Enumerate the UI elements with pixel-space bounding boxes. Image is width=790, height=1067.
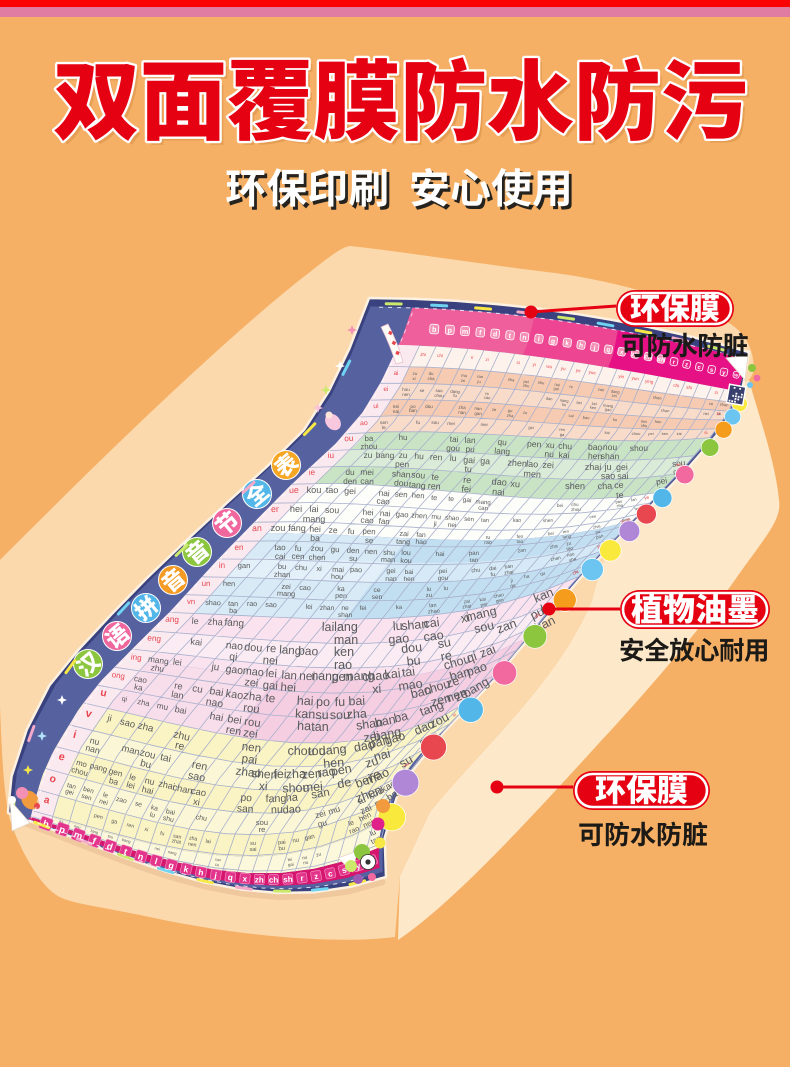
svg-text:ju: ju [210, 661, 220, 673]
svg-text:tao: tao [274, 543, 286, 552]
svg-text:cao: cao [299, 583, 311, 592]
svg-text:ui: ui [373, 403, 379, 410]
svg-text:lai: lai [309, 504, 318, 514]
svg-text:sh: sh [283, 875, 293, 884]
svg-text:rao: rao [247, 600, 258, 609]
svg-text:xi: xi [316, 564, 322, 573]
svg-text:nai: nai [393, 409, 400, 415]
svg-text:chu: chu [471, 568, 480, 575]
svg-text:cao: cao [360, 516, 374, 526]
svg-text:rao: rao [484, 540, 492, 546]
svg-text:si: si [516, 360, 520, 365]
svg-text:ren: ren [430, 452, 443, 463]
svg-text:nei: nei [703, 411, 709, 416]
svg-text:tan: tan [311, 720, 328, 734]
svg-text:mang: mang [277, 589, 296, 599]
svg-text:gai: gai [288, 862, 294, 868]
svg-text:bang: bang [376, 450, 395, 460]
svg-text:cha: cha [427, 376, 435, 381]
svg-text:kao: kao [513, 518, 521, 524]
svg-text:fei: fei [461, 484, 471, 495]
svg-text:bai: bai [405, 569, 414, 576]
svg-text:cen: cen [589, 514, 597, 520]
svg-text:lei: lei [305, 604, 313, 611]
svg-text:shu: shu [641, 423, 648, 428]
svg-text:ze: ze [328, 525, 338, 535]
svg-text:su: su [349, 554, 358, 563]
svg-text:ha: ha [285, 792, 299, 805]
svg-text:gei: gei [344, 486, 356, 496]
svg-text:cai: cai [568, 413, 574, 418]
svg-text:zhan: zhan [320, 605, 335, 612]
svg-text:cao: cao [484, 395, 492, 401]
svg-text:zhan: zhan [274, 570, 291, 580]
svg-text:er: er [271, 504, 279, 514]
svg-text:yi: yi [532, 362, 536, 367]
svg-text:zh: zh [255, 875, 264, 884]
svg-text:shen: shen [543, 518, 554, 523]
svg-text:ce: ce [374, 587, 381, 594]
svg-text:si: si [704, 430, 708, 435]
svg-text:sou: sou [431, 420, 439, 425]
svg-text:se: se [365, 536, 374, 545]
svg-text:nei: nei [448, 522, 457, 529]
svg-text:re: re [258, 825, 265, 834]
svg-text:cu: cu [215, 862, 220, 867]
svg-text:nan: nan [458, 410, 466, 415]
svg-text:kai: kai [558, 450, 570, 461]
svg-text:dou: dou [394, 478, 409, 489]
svg-text:en: en [234, 543, 244, 552]
svg-text:kai: kai [604, 430, 609, 435]
svg-text:ken: ken [590, 405, 597, 411]
svg-text:pen: pen [395, 459, 410, 469]
svg-text:chen: chen [308, 553, 325, 563]
svg-text:men: men [523, 468, 541, 479]
svg-text:ku: ku [562, 402, 567, 407]
svg-text:fei: fei [360, 605, 367, 612]
svg-text:qi: qi [229, 652, 238, 664]
svg-text:ben: ben [662, 431, 669, 436]
svg-text:bei: bei [557, 503, 563, 508]
svg-text:kou: kou [307, 485, 322, 495]
svg-text:xu: xu [510, 479, 520, 490]
svg-text:hai: hai [209, 711, 224, 724]
svg-text:hu: hu [414, 451, 424, 461]
svg-text:hei: hei [290, 504, 302, 514]
svg-text:fang: fang [288, 523, 306, 533]
svg-text:ren: ren [427, 480, 441, 491]
svg-text:zhu: zhu [150, 662, 165, 674]
svg-text:tang: tang [408, 479, 426, 490]
svg-text:lu: lu [449, 453, 457, 463]
svg-text:bu: bu [278, 846, 285, 853]
svg-text:un: un [202, 579, 211, 588]
svg-text:xi: xi [412, 376, 415, 381]
svg-text:hao: hao [415, 539, 427, 547]
svg-text:lang: lang [494, 445, 511, 456]
svg-text:chu: chu [295, 563, 307, 572]
svg-text:shao: shao [205, 598, 221, 608]
svg-text:mei: mei [480, 422, 487, 427]
svg-text:wu: wu [546, 364, 553, 370]
svg-text:ing: ing [130, 652, 142, 662]
svg-text:ken: ken [334, 645, 354, 659]
svg-text:po: po [240, 793, 252, 805]
svg-text:cu: cu [191, 683, 203, 696]
svg-text:ue: ue [289, 485, 299, 495]
svg-text:ang: ang [165, 614, 180, 625]
svg-text:pu: pu [465, 444, 475, 454]
svg-text:zan: zan [517, 548, 526, 555]
svg-text:ha: ha [297, 719, 311, 733]
svg-text:n: n [522, 334, 527, 341]
svg-text:can: can [360, 476, 374, 486]
svg-text:ce: ce [614, 480, 624, 490]
svg-text:gao: gao [396, 510, 409, 520]
svg-text:tu: tu [464, 464, 472, 474]
svg-text:gan: gan [474, 411, 482, 417]
svg-text:hou: hou [655, 419, 662, 424]
svg-text:man: man [381, 555, 396, 564]
svg-text:de: de [336, 775, 352, 791]
svg-text:mei: mei [447, 421, 455, 426]
svg-text:se: se [420, 388, 425, 393]
svg-text:hen: hen [403, 576, 414, 583]
svg-text:tan: tan [481, 518, 489, 524]
svg-text:ba: ba [310, 533, 320, 543]
svg-text:cai: cai [275, 552, 286, 561]
svg-text:hen: hen [412, 490, 425, 500]
svg-text:m: m [462, 327, 469, 336]
svg-text:shan: shan [338, 612, 353, 619]
svg-text:chou: chou [632, 431, 641, 436]
svg-text:zhai: zhai [585, 462, 602, 472]
svg-text:ei: ei [383, 386, 388, 393]
svg-text:chi: chi [437, 353, 443, 358]
svg-text:cao: cao [376, 496, 390, 507]
svg-text:fan: fan [378, 517, 390, 527]
svg-text:hei: hei [280, 680, 296, 694]
svg-text:zou: zou [311, 544, 324, 553]
svg-text:den: den [343, 476, 357, 486]
svg-text:dou: dou [425, 404, 433, 409]
svg-text:dao: dao [282, 803, 301, 816]
svg-text:gan: gan [238, 561, 251, 570]
svg-text:zha: zha [507, 413, 515, 419]
svg-text:pao: pao [350, 565, 362, 574]
svg-text:can: can [478, 505, 488, 513]
svg-text:ga: ga [480, 456, 491, 467]
svg-text:nu: nu [544, 449, 554, 459]
svg-text:tang: tang [396, 537, 410, 547]
svg-text:lan: lan [171, 689, 185, 701]
svg-text:fang: fang [224, 617, 244, 629]
svg-text:sao: sao [265, 601, 277, 610]
svg-text:tao: tao [516, 539, 523, 545]
svg-text:le: le [191, 616, 199, 626]
svg-text:zan: zan [598, 387, 605, 393]
svg-text:ou: ou [344, 434, 353, 443]
svg-text:gu: gu [331, 545, 340, 554]
svg-text:nao: nao [225, 640, 244, 653]
svg-text:lai: lai [205, 839, 211, 846]
svg-text:sen: sen [394, 489, 408, 499]
svg-text:d: d [493, 331, 498, 338]
svg-text:fu: fu [347, 527, 355, 536]
svg-text:kai: kai [190, 636, 203, 647]
svg-text:shen: shen [565, 481, 585, 491]
svg-text:zu: zu [364, 451, 373, 460]
svg-text:gei: gei [386, 568, 396, 575]
svg-text:eng: eng [147, 633, 162, 643]
svg-text:ka: ka [396, 605, 403, 611]
svg-text:ku: ku [613, 417, 618, 422]
svg-text:ao: ao [360, 420, 368, 427]
svg-text:nei: nei [262, 654, 278, 667]
svg-text:nu: nu [292, 837, 300, 844]
svg-text:gei: gei [528, 425, 534, 430]
svg-text:xi: xi [372, 682, 382, 697]
svg-text:zha: zha [207, 616, 224, 628]
svg-text:nai: nai [492, 486, 505, 497]
svg-text:fu: fu [490, 572, 495, 578]
svg-text:fan: fan [631, 497, 637, 503]
svg-text:pen: pen [335, 593, 347, 600]
svg-text:chan: chan [661, 408, 670, 414]
svg-text:gao: gao [225, 664, 244, 677]
svg-text:zei: zei [542, 460, 554, 471]
svg-text:sou: sou [325, 505, 340, 515]
svg-text:zi: zi [716, 411, 720, 416]
svg-text:pen: pen [527, 439, 542, 450]
svg-text:ban: ban [409, 408, 417, 413]
svg-text:le: le [382, 425, 386, 431]
svg-text:fu: fu [416, 420, 420, 426]
svg-text:gou: gou [446, 444, 461, 454]
svg-text:zha: zha [549, 543, 558, 550]
svg-text:ri: ri [471, 355, 474, 360]
svg-text:nen: nen [402, 392, 410, 397]
svg-text:tai: tai [450, 435, 459, 444]
svg-text:zhou: zhou [571, 507, 581, 512]
svg-text:vn: vn [187, 597, 196, 606]
svg-text:te: te [265, 691, 277, 706]
svg-text:gou: gou [438, 575, 449, 582]
svg-text:dan: dan [546, 396, 553, 402]
svg-text:gai: gai [553, 386, 559, 392]
svg-text:chou: chou [434, 393, 444, 398]
svg-text:rou: rou [242, 702, 260, 716]
svg-text:lai: lai [322, 620, 335, 634]
svg-text:zhi: zhi [420, 352, 426, 357]
svg-text:lang: lang [334, 620, 358, 634]
svg-text:ba: ba [229, 606, 237, 615]
svg-text:sai: sai [249, 847, 256, 853]
svg-text:lei: lei [172, 656, 182, 667]
svg-text:zei: zei [611, 393, 617, 399]
svg-text:ch: ch [269, 876, 279, 885]
svg-text:san: san [237, 803, 254, 815]
svg-text:shu: shu [538, 380, 545, 386]
svg-text:ren: ren [225, 724, 242, 738]
svg-text:zi: zi [485, 357, 489, 362]
svg-text:bei: bei [576, 400, 582, 406]
svg-text:zu: zu [426, 593, 433, 599]
svg-text:tan: tan [470, 557, 479, 564]
svg-text:zou: zou [271, 523, 286, 533]
svg-text:zhai: zhai [504, 569, 514, 576]
svg-text:chi: chi [673, 383, 680, 389]
svg-text:shou: shou [630, 443, 649, 453]
svg-text:tao: tao [326, 485, 339, 495]
svg-text:sen: sen [464, 516, 474, 524]
svg-text:lei: lei [265, 668, 277, 681]
svg-text:mang: mang [303, 514, 326, 524]
svg-text:hen: hen [223, 579, 236, 588]
svg-text:lu: lu [444, 586, 449, 592]
svg-text:nan: nan [385, 576, 397, 583]
svg-text:cen: cen [291, 552, 304, 561]
svg-text:gai: gai [462, 497, 471, 505]
svg-text:hu: hu [399, 433, 408, 442]
svg-text:xi: xi [258, 779, 268, 794]
svg-text:in: in [219, 561, 225, 570]
svg-text:shan: shan [601, 451, 620, 461]
svg-text:zei: zei [242, 727, 258, 741]
svg-text:shi: shi [686, 385, 693, 391]
svg-text:te: te [448, 496, 455, 503]
svg-text:nu: nu [271, 804, 283, 816]
svg-text:hou: hou [331, 572, 343, 581]
svg-text:zhu: zhu [523, 383, 530, 389]
svg-text:bao: bao [583, 415, 591, 421]
svg-text:zai: zai [676, 431, 681, 436]
svg-text:bei: bei [548, 531, 555, 537]
svg-text:nen: nen [365, 547, 378, 556]
svg-text:ai: ai [394, 370, 399, 377]
svg-text:ju: ju [476, 379, 481, 384]
svg-text:kao: kao [225, 688, 244, 702]
svg-text:sen: sen [372, 594, 383, 601]
svg-text:zhen: zhen [507, 457, 527, 468]
svg-text:kou: kou [400, 557, 412, 565]
svg-text:hai: hai [436, 551, 445, 558]
svg-text:re: re [266, 643, 277, 656]
svg-text:te: te [431, 493, 438, 502]
svg-text:an: an [252, 523, 262, 533]
svg-text:bao: bao [298, 643, 319, 658]
svg-text:zhen: zhen [411, 510, 427, 520]
svg-text:dou: dou [244, 641, 263, 655]
svg-text:pei: pei [648, 431, 653, 436]
svg-text:cha: cha [597, 481, 613, 492]
svg-text:zei: zei [244, 676, 259, 689]
